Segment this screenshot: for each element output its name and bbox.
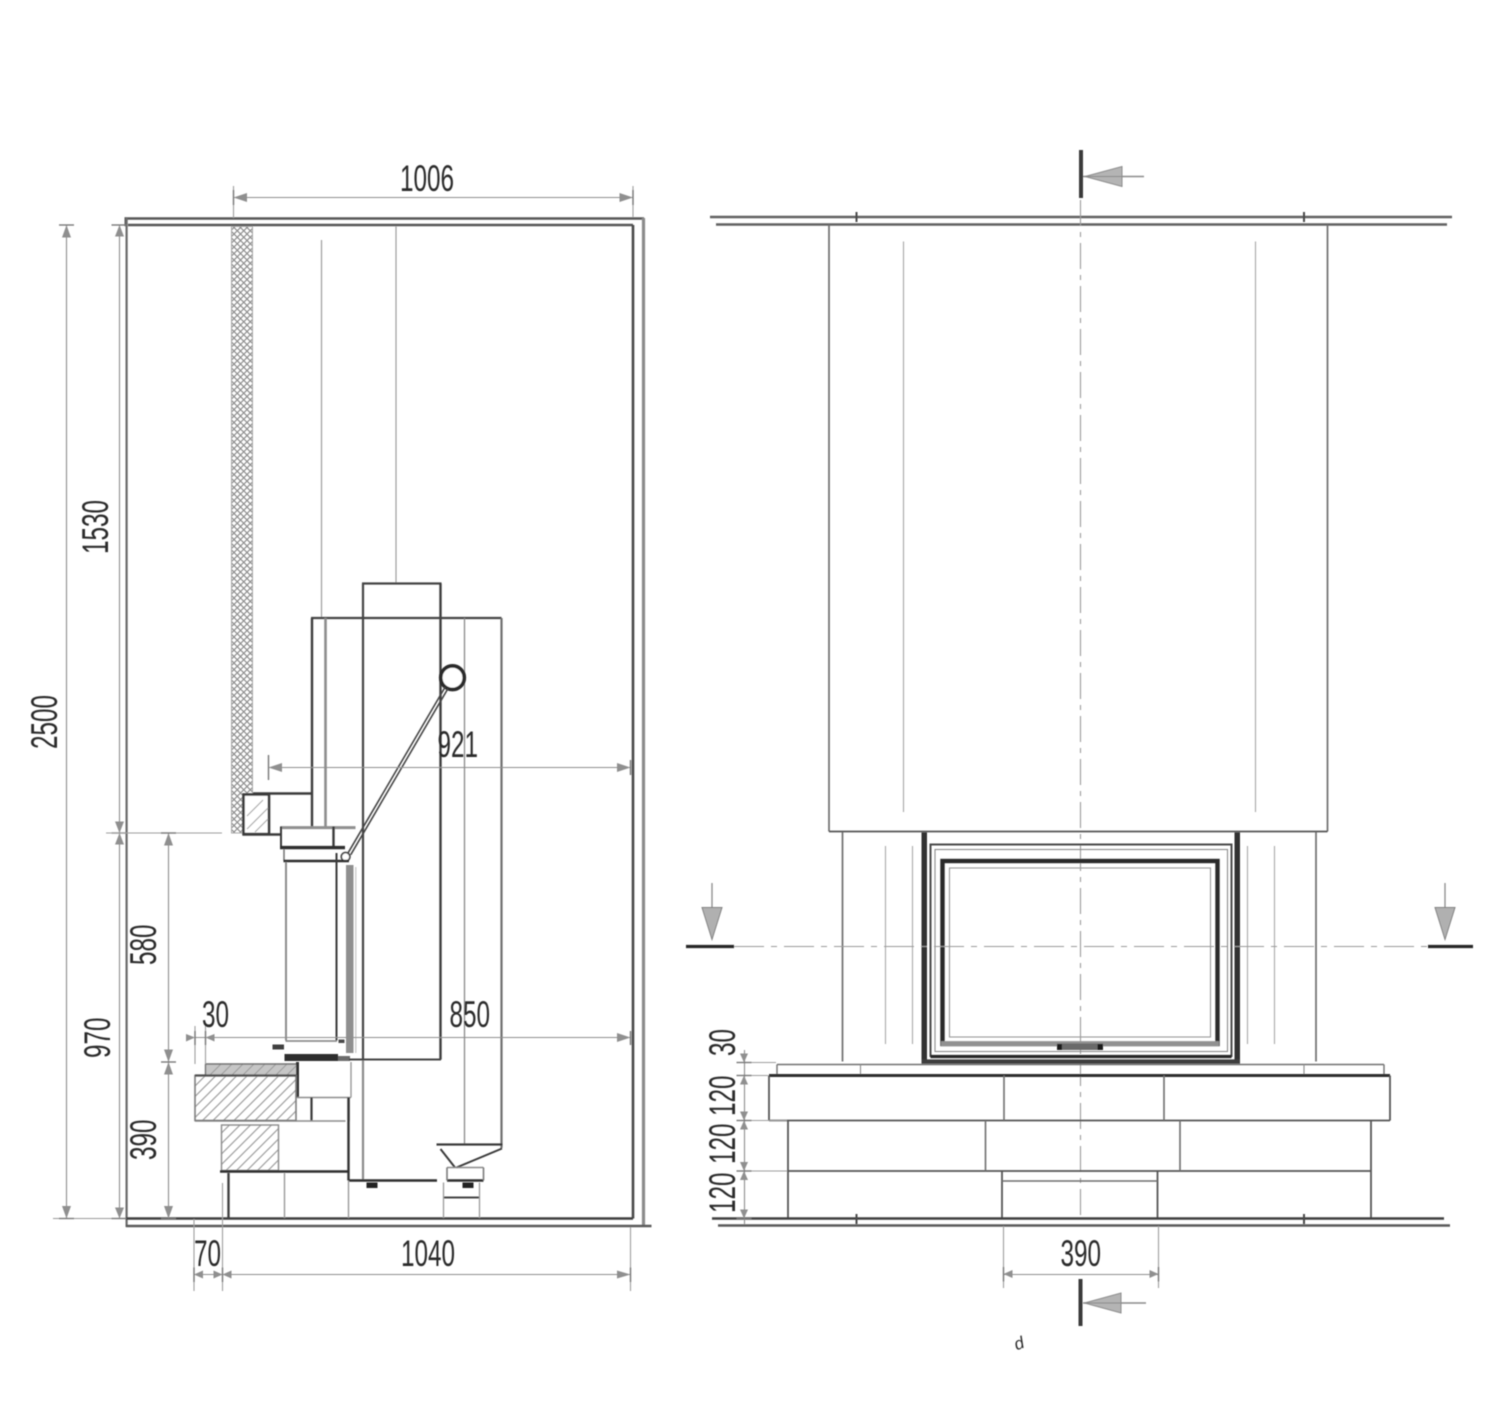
- svg-text:30: 30: [702, 1029, 743, 1056]
- svg-text:921: 921: [438, 724, 479, 765]
- svg-text:120: 120: [702, 1124, 743, 1165]
- svg-text:1006: 1006: [400, 158, 454, 199]
- svg-text:1040: 1040: [401, 1233, 455, 1274]
- svg-text:70: 70: [194, 1233, 221, 1274]
- svg-text:580: 580: [123, 925, 164, 966]
- svg-text:30: 30: [202, 994, 229, 1035]
- svg-text:390: 390: [123, 1120, 164, 1161]
- svg-text:850: 850: [450, 994, 491, 1035]
- svg-text:120: 120: [702, 1076, 743, 1117]
- svg-text:390: 390: [1061, 1233, 1102, 1274]
- svg-text:970: 970: [77, 1018, 118, 1059]
- svg-text:1530: 1530: [75, 500, 116, 554]
- svg-text:120: 120: [702, 1173, 743, 1214]
- svg-text:2500: 2500: [24, 695, 65, 749]
